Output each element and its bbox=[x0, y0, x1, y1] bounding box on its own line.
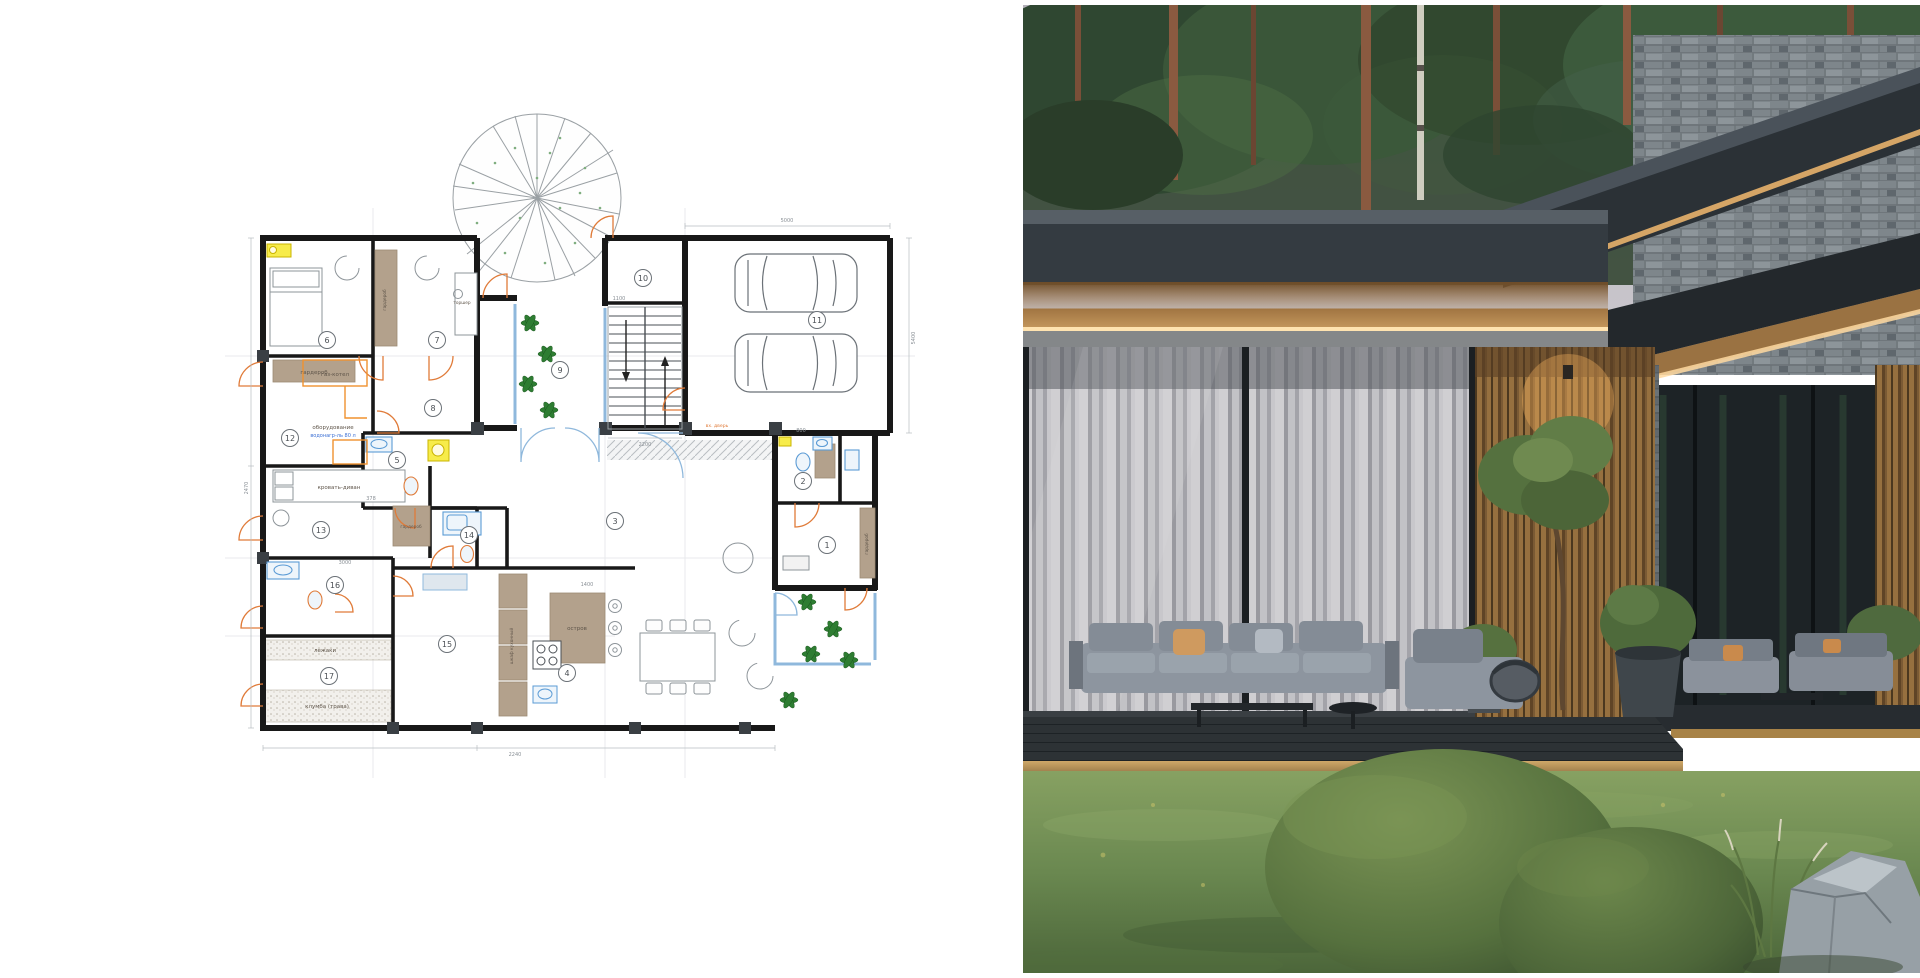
dim-text: 2240 bbox=[509, 752, 522, 758]
accent-pillow bbox=[1723, 645, 1743, 661]
room-number: 15 bbox=[442, 640, 452, 649]
bath-fixtures bbox=[267, 437, 859, 609]
plant-icon bbox=[519, 375, 537, 394]
plant-icon bbox=[798, 593, 816, 612]
dim-text: 800 bbox=[796, 428, 806, 434]
plant-icon bbox=[840, 651, 858, 670]
render-illustration bbox=[1023, 5, 1920, 973]
room-number: 17 bbox=[324, 672, 334, 681]
plant-icon bbox=[802, 645, 820, 664]
presentation-page: 1 2 3 4 5 6 7 8 9 10 11 12 13 14 15 16 1… bbox=[0, 0, 1920, 978]
accent-pillow bbox=[1823, 639, 1841, 653]
dim-text: 1400 bbox=[581, 582, 594, 588]
room-number: 6 bbox=[324, 336, 329, 345]
exterior-render-photo bbox=[1023, 5, 1920, 973]
car-icon bbox=[735, 334, 857, 392]
room-number: 9 bbox=[557, 366, 562, 375]
wall-sconce bbox=[1563, 365, 1573, 379]
dim-text: 2470 bbox=[244, 482, 250, 495]
room-number: 13 bbox=[316, 526, 326, 535]
room-number: 2 bbox=[800, 477, 805, 486]
room-number: 12 bbox=[285, 434, 295, 443]
label-equipment: оборудование bbox=[312, 425, 354, 431]
label-wardrobe: гардероб bbox=[400, 524, 422, 530]
floor-plan-drawing: 1 2 3 4 5 6 7 8 9 10 11 12 13 14 15 16 1… bbox=[215, 88, 940, 793]
flat-roof-fascia bbox=[1023, 224, 1608, 282]
dim-text: 1100 bbox=[613, 296, 626, 302]
label-kitchen-cabinet: шкаф кухонный bbox=[508, 628, 515, 665]
wood-fascia bbox=[1023, 282, 1608, 330]
coffee-table bbox=[1761, 693, 1823, 700]
dim-text: 5000 bbox=[781, 218, 794, 224]
label-water-heater: водонагр-ль 80 л bbox=[310, 433, 355, 439]
label-floor-lamp: торшер bbox=[453, 301, 470, 306]
label-wardrobe: гардероб bbox=[864, 533, 870, 555]
label-wardrobe: гардероб bbox=[382, 289, 388, 311]
accent-pillow bbox=[1173, 629, 1205, 655]
stairs-icon bbox=[608, 307, 682, 429]
plant-icon bbox=[824, 620, 842, 639]
room-number: 11 bbox=[812, 316, 822, 325]
dim-text: 2200 bbox=[639, 442, 652, 448]
room-number: 5 bbox=[394, 456, 399, 465]
dim-text: 5400 bbox=[911, 332, 917, 345]
deck-gold-band bbox=[1671, 729, 1920, 738]
label-entry-door: вх. дверь bbox=[706, 424, 729, 429]
car-icon bbox=[735, 254, 857, 312]
label-bed-sofa: кровать-диван bbox=[318, 485, 361, 491]
furniture bbox=[270, 256, 809, 694]
rope-lounge-chair bbox=[1491, 661, 1539, 701]
plant-icon bbox=[780, 691, 798, 710]
room-number: 4 bbox=[564, 669, 569, 678]
outdoor-sofa bbox=[1683, 657, 1779, 693]
fascia-led-strip bbox=[1023, 327, 1608, 331]
room-number: 1 bbox=[824, 541, 829, 550]
roof-parapet bbox=[1023, 210, 1608, 224]
room-number: 10 bbox=[638, 274, 648, 283]
garage-cars bbox=[735, 254, 857, 392]
label-flowerbed: клумба (трава) bbox=[305, 704, 349, 710]
room-number: 3 bbox=[612, 517, 617, 526]
plant-icon bbox=[521, 314, 539, 333]
soffit-shadow bbox=[1023, 331, 1608, 347]
kitchen-sink bbox=[533, 686, 557, 703]
room-number: 14 bbox=[464, 531, 474, 540]
plant-icon bbox=[540, 401, 558, 420]
bar-stools bbox=[609, 600, 622, 657]
dim-text: 3000 bbox=[339, 560, 352, 566]
floor-plan-panel: 1 2 3 4 5 6 7 8 9 10 11 12 13 14 15 16 1… bbox=[215, 88, 940, 793]
room-number: 8 bbox=[430, 404, 435, 413]
room-number: 16 bbox=[330, 581, 340, 590]
stove-icon bbox=[533, 641, 561, 669]
bush-highlight bbox=[1283, 775, 1467, 859]
label-gas-boiler: газ-котел bbox=[321, 372, 349, 378]
label-island: остров bbox=[567, 626, 587, 632]
plant-icon bbox=[538, 345, 556, 364]
room-number: 7 bbox=[434, 336, 439, 345]
label-loungers: лежаки bbox=[314, 648, 337, 654]
dim-text: 378 bbox=[366, 496, 376, 502]
